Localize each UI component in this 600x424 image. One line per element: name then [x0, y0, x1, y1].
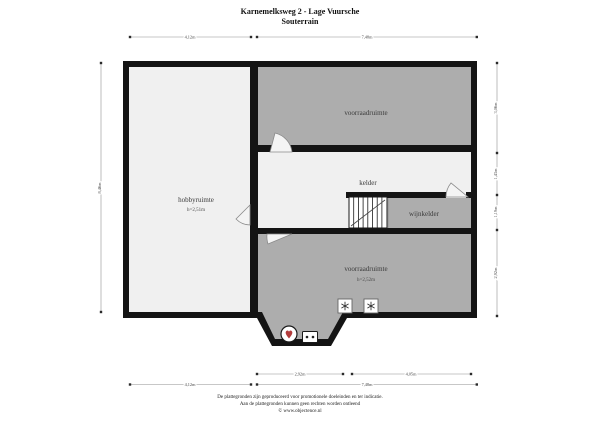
dim-left: 8,46m — [97, 182, 103, 194]
socket-icon — [303, 332, 318, 343]
label-kelder: kelder — [359, 179, 377, 187]
ventilation-icon-left — [338, 299, 352, 313]
room-voorraadruimte-bottom — [258, 234, 471, 339]
label-hobbyruimte: hobbyruimte — [178, 196, 214, 204]
dim-right-top: 3,06m — [493, 102, 499, 114]
dim-bottom-inner-right: 4,05m — [406, 372, 418, 378]
floorplan-canvas: Karnemelksweg 2 - Lage Vuursche Souterra… — [0, 0, 600, 424]
dim-bottom-outer-left: 4,12m — [185, 382, 197, 388]
label-wijnkelder: wijnkelder — [409, 210, 440, 218]
dim-right-bottom: 2,92m — [493, 267, 499, 279]
page-title: Karnemelksweg 2 - Lage Vuursche — [241, 7, 360, 16]
dim-bottom-inner-left: 2,92m — [295, 372, 307, 378]
dim-top-right: 7,48m — [362, 35, 374, 41]
page-subtitle: Souterrain — [282, 17, 319, 26]
label-voorraadruimte-top: voorraadruimte — [344, 109, 387, 117]
wall-kelder-top-left — [250, 145, 270, 152]
wall-kelder-bottom-right — [292, 228, 471, 234]
ventilation-icon-right — [364, 299, 378, 313]
dim-top-left: 4,12m — [185, 35, 197, 41]
room-hobbyruimte — [129, 67, 250, 312]
wall-kelder-bottom-left — [250, 228, 267, 234]
dim-right-wijnkelder: 1,19m — [493, 206, 499, 218]
label-voorraadruimte-bottom-height: h=2,52m — [357, 278, 375, 283]
wall-vertical — [250, 61, 258, 318]
label-voorraadruimte-bottom: voorraadruimte — [344, 265, 387, 273]
footer-copyright: © www.objectence.nl — [278, 408, 322, 414]
wall-kelder-top-right — [292, 145, 471, 152]
room-voorraadruimte-top — [258, 67, 471, 145]
dim-right-kelder: 1,43m — [493, 168, 499, 180]
footer-disclaimer-1: De plattegronden zijn geproduceerd voor … — [217, 395, 383, 400]
label-hobbyruimte-height: h=2,51m — [187, 208, 205, 213]
stairs — [349, 197, 387, 228]
floorplan-page: Karnemelksweg 2 - Lage Vuursche Souterra… — [0, 0, 600, 424]
dim-bottom-outer-right: 7,48m — [362, 382, 374, 388]
boiler-icon — [281, 326, 297, 342]
footer-disclaimer-2: Aan de plattegronden kunnen geen rechten… — [240, 402, 361, 407]
